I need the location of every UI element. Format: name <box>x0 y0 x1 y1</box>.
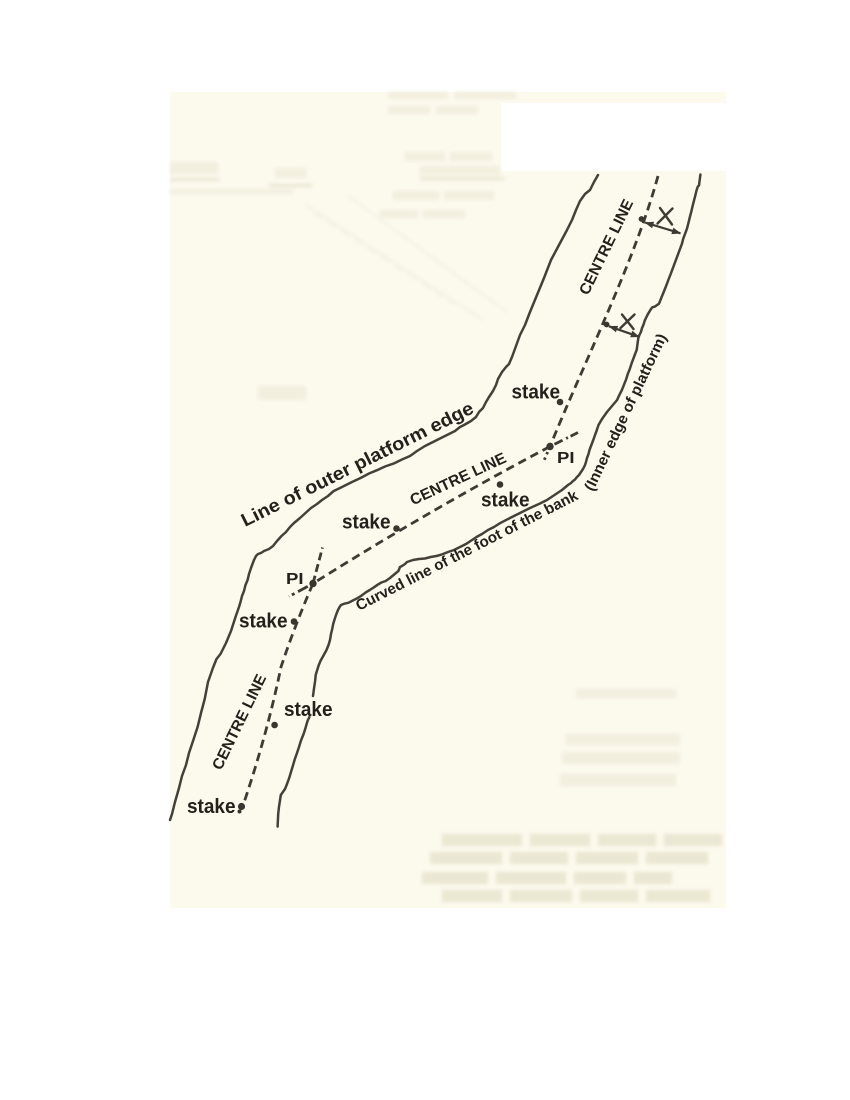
svg-text:stake: stake <box>481 490 530 512</box>
svg-text:PI: PI <box>286 571 304 588</box>
svg-text:stake: stake <box>342 512 391 534</box>
svg-text:stake: stake <box>512 382 561 404</box>
svg-text:stake: stake <box>284 699 333 721</box>
svg-text:stake: stake <box>239 611 288 633</box>
svg-text:stake: stake <box>187 796 236 818</box>
svg-text:PI: PI <box>557 450 575 467</box>
